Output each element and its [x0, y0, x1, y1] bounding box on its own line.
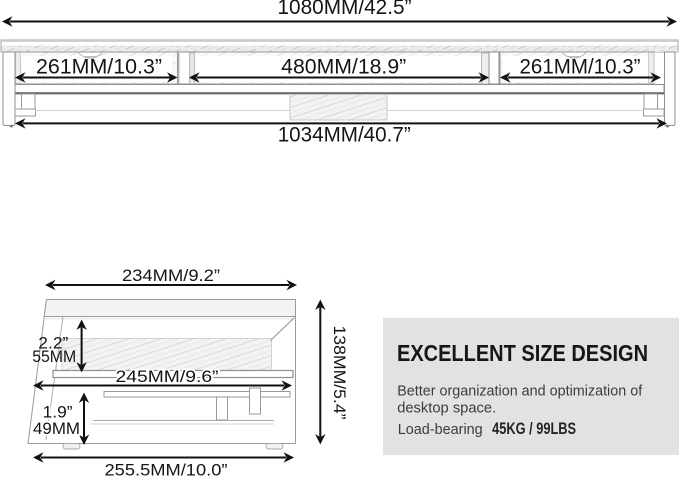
svg-text:1.9”: 1.9” [43, 404, 73, 422]
svg-text:234MM/9.2”: 234MM/9.2” [122, 267, 220, 285]
svg-text:261MM/10.3”: 261MM/10.3” [36, 56, 162, 79]
svg-text:1034MM/40.7”: 1034MM/40.7” [278, 123, 411, 146]
svg-text:261MM/10.3”: 261MM/10.3” [520, 56, 641, 79]
svg-text:49MM: 49MM [33, 420, 80, 438]
svg-text:255.5MM/10.0”: 255.5MM/10.0” [105, 462, 228, 479]
svg-text:Load-bearing: Load-bearing [398, 421, 483, 438]
svg-text:245MM/9.6”: 245MM/9.6” [116, 368, 219, 386]
svg-text:1080MM/42.5”: 1080MM/42.5” [278, 0, 412, 19]
svg-text:EXCELLENT SIZE DESIGN: EXCELLENT SIZE DESIGN [397, 340, 648, 366]
svg-text:desktop space.: desktop space. [397, 400, 496, 417]
svg-text:Better organization and optimi: Better organization and optimization of [397, 383, 643, 400]
svg-text:45KG / 99LBS: 45KG / 99LBS [492, 420, 576, 438]
svg-text:138MM/5.4”: 138MM/5.4” [330, 326, 348, 420]
svg-text:55MM: 55MM [32, 348, 76, 366]
svg-text:480MM/18.9”: 480MM/18.9” [281, 56, 406, 79]
